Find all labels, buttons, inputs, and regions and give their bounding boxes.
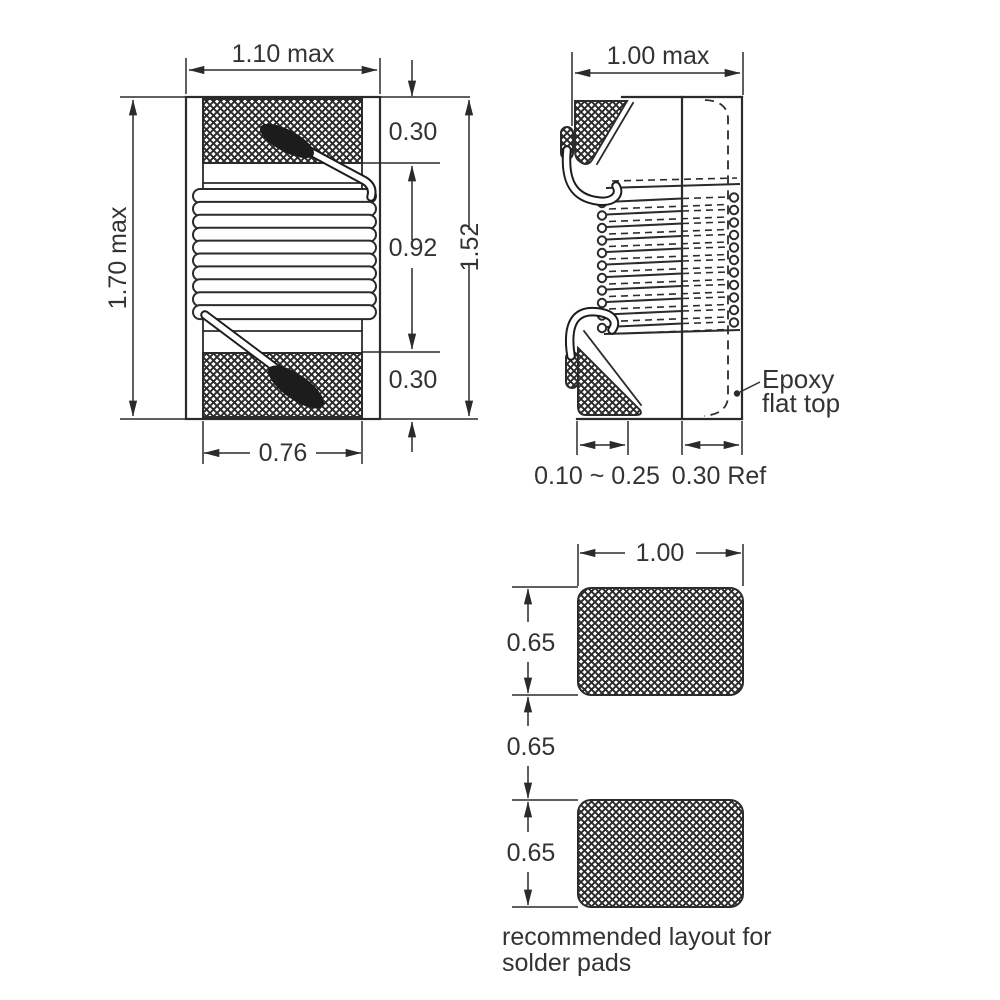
top-pad-height-label: 0.65 [507, 629, 556, 657]
front-height-label: 1.70 max [104, 206, 132, 309]
bottom-electrode-label: 0.30 [389, 366, 438, 394]
side-view [561, 97, 742, 419]
leader-dot [734, 390, 740, 396]
pad-gap-label: 0.65 [507, 733, 556, 761]
pad-caption-line2: solder pads [502, 949, 631, 977]
technical-drawing-canvas: 1.10 max 1.70 max 0.30 0.92 0.30 1.52 0.… [0, 0, 1000, 1000]
electrode-width-label: 0.76 [259, 439, 308, 467]
top-electrode-label: 0.30 [389, 118, 438, 146]
side-depth-label: 1.00 max [607, 42, 710, 70]
front-coil-winding [193, 189, 376, 319]
solder-pad-bottom [578, 800, 743, 907]
core-height-label: 1.52 [456, 223, 484, 272]
bottom-pad-height-label: 0.65 [507, 839, 556, 867]
side-electrode-bottom [578, 331, 641, 415]
inductor-dimension-drawing: 1.10 max 1.70 max 0.30 0.92 0.30 1.52 0.… [0, 0, 1000, 1000]
pad-layout: 1.00 0.65 0.65 0.65 recommended layout f… [502, 539, 772, 977]
pad-caption-line1: recommended layout for [502, 923, 772, 951]
front-width-label: 1.10 max [232, 40, 335, 68]
pad-width-label: 1.00 [636, 539, 685, 567]
terminal-thickness-label: 0.10 ~ 0.25 [534, 462, 660, 490]
side-coil-winding [598, 178, 740, 334]
epoxy-width-label: 0.30 Ref [672, 462, 767, 490]
side-electrode-top [575, 101, 633, 164]
epoxy-note-line2: flat top [762, 388, 840, 418]
side-hidden-core-edge [704, 100, 728, 416]
front-view [186, 97, 380, 419]
solder-pad-top [578, 588, 743, 695]
winding-section-label: 0.92 [389, 234, 438, 262]
epoxy-callout: Epoxy flat top [734, 364, 840, 418]
